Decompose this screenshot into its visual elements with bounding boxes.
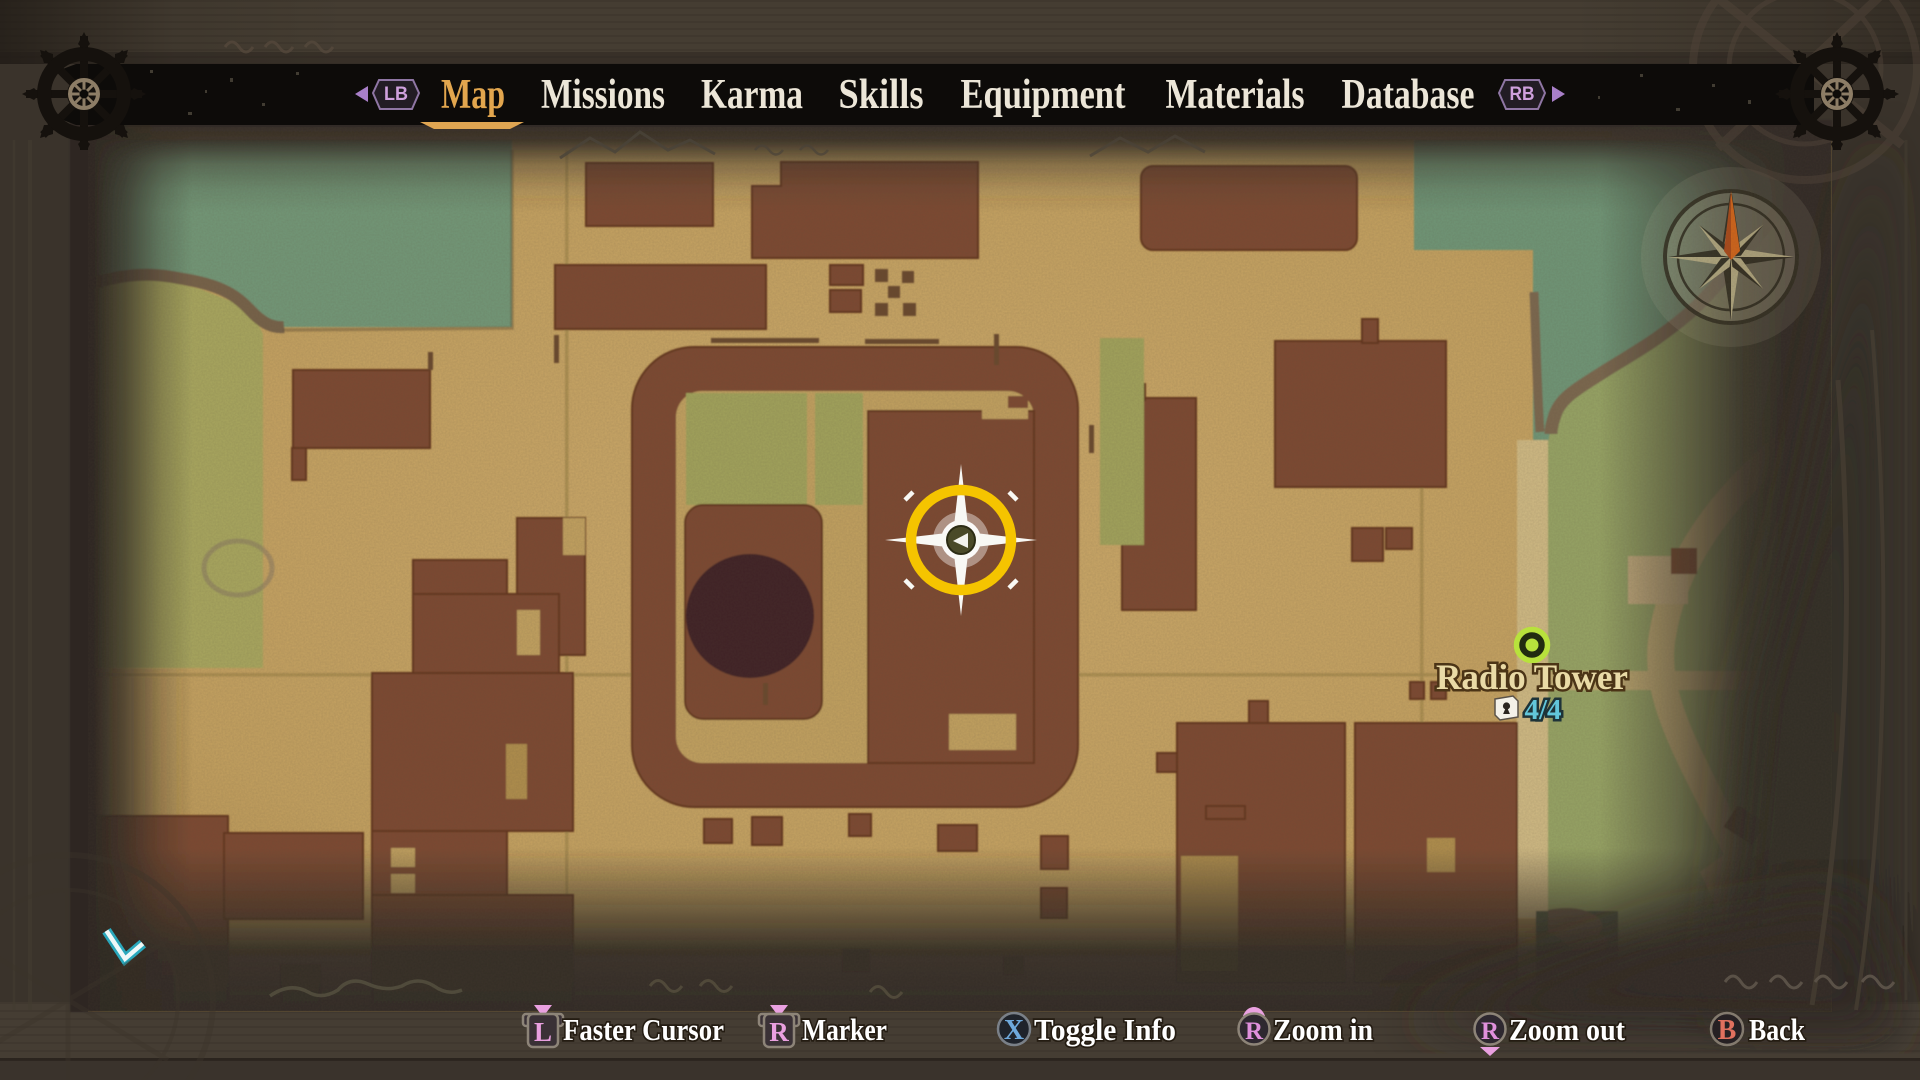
- svg-text:Map: Map: [441, 72, 505, 118]
- svg-text:L: L: [534, 1017, 552, 1047]
- svg-text:Missions: Missions: [541, 72, 665, 118]
- svg-text:Back: Back: [1749, 1012, 1806, 1047]
- svg-text:Zoom in: Zoom in: [1273, 1012, 1373, 1047]
- svg-text:R: R: [1481, 1018, 1500, 1045]
- svg-text:X: X: [1004, 1015, 1024, 1046]
- svg-text:Equipment: Equipment: [961, 72, 1126, 118]
- svg-text:Zoom out: Zoom out: [1509, 1012, 1626, 1047]
- svg-text:LB: LB: [384, 84, 408, 105]
- svg-text:Database: Database: [1342, 72, 1475, 118]
- svg-text:Radio Tower: Radio Tower: [1436, 657, 1628, 697]
- svg-text:RB: RB: [1510, 84, 1535, 105]
- svg-text:Skills: Skills: [839, 72, 924, 118]
- svg-text:Faster Cursor: Faster Cursor: [563, 1012, 724, 1047]
- svg-text:Marker: Marker: [802, 1012, 887, 1047]
- svg-text:R: R: [769, 1017, 789, 1047]
- svg-text:R: R: [1245, 1018, 1264, 1045]
- svg-text:B: B: [1718, 1015, 1737, 1046]
- svg-text:4/4: 4/4: [1524, 694, 1561, 726]
- svg-text:Karma: Karma: [701, 72, 803, 118]
- svg-text:Toggle Info: Toggle Info: [1034, 1012, 1176, 1047]
- svg-text:Materials: Materials: [1166, 72, 1305, 118]
